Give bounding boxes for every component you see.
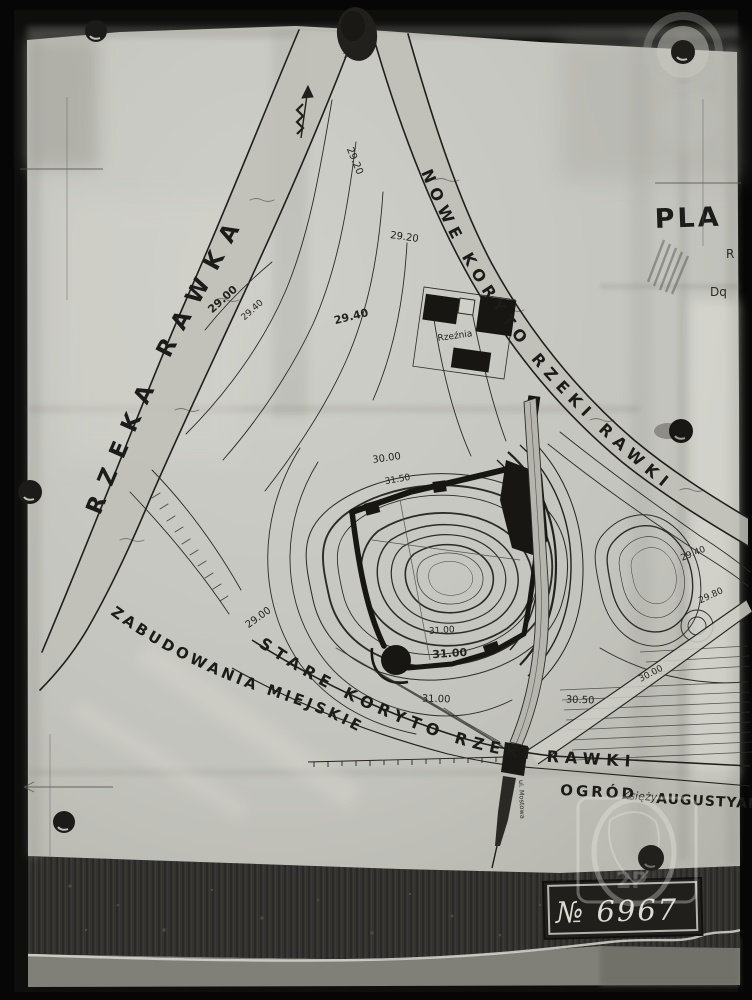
contour-label: 31.00 (432, 646, 468, 661)
pin-top-left (85, 20, 107, 42)
pin-top-right (647, 16, 719, 88)
margin-fragment-r: R (726, 247, 734, 261)
pin-bottom-left (53, 811, 75, 833)
margin-fragment-dq: Dq (710, 285, 727, 299)
label-street: ul. Mostowa (517, 780, 526, 819)
building-outline (458, 298, 475, 315)
pin-left-middle (18, 480, 42, 504)
glass-plate-photo: RZEKA RAWKA NOWE KORYTO RZEKI RAWKI STAR… (0, 0, 752, 1000)
title-fragment-pla: PLA (654, 202, 722, 235)
pin-bottom-right (638, 845, 664, 871)
contour-label: 31.00 (422, 694, 451, 706)
castle-round-tower (381, 645, 411, 675)
building-block (422, 294, 459, 324)
contour-label: 31.00 (429, 625, 456, 637)
seal-text: 2P (616, 869, 647, 894)
contour-label: 30.50 (566, 695, 595, 707)
map-photo-canvas: RZEKA RAWKA NOWE KORYTO RZEKI RAWKI STAR… (0, 0, 752, 1000)
